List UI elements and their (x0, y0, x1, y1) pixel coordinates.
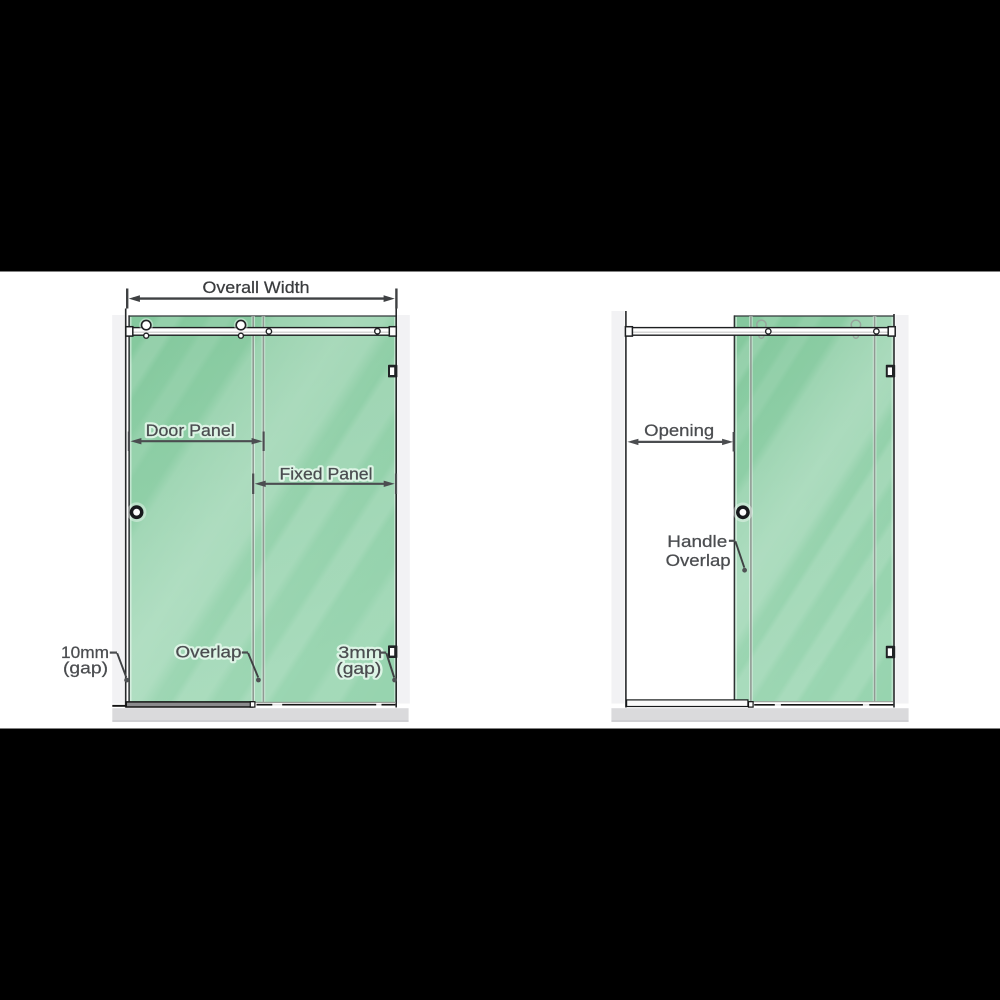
svg-text:Handle: Handle (667, 532, 727, 551)
svg-text:Fixed Panel: Fixed Panel (280, 464, 373, 483)
svg-text:(gap): (gap) (63, 658, 108, 677)
svg-text:Opening: Opening (644, 421, 714, 440)
svg-text:(gap): (gap) (336, 659, 381, 678)
svg-text:Door Panel: Door Panel (146, 421, 235, 440)
svg-text:Overlap: Overlap (176, 642, 242, 661)
svg-text:Overlap: Overlap (666, 551, 731, 570)
svg-text:Overall Width: Overall Width (203, 278, 310, 297)
